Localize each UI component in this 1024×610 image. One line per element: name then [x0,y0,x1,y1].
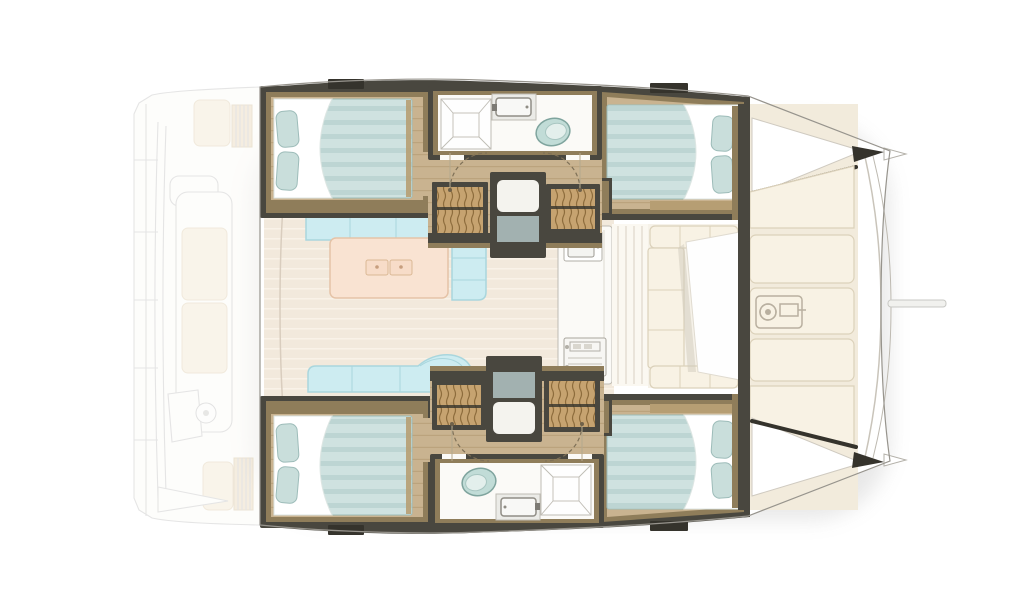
floor-plan-canvas [0,0,1024,610]
bowsprit [888,300,946,307]
galley [558,226,612,384]
port-bathroom-block [428,86,602,258]
foredeck [748,104,862,510]
cockpit-bench [648,248,684,368]
bow-tip [884,454,906,466]
bulkhead-trim [732,394,738,508]
forward-cockpit [648,224,740,388]
sunpad-cushion [750,235,854,283]
starboard-bathroom-block [430,356,604,528]
sunpad-cushion [750,339,854,381]
aft-cockpit-ghost [134,87,260,525]
starboard-aft-cabin [260,396,434,528]
side-steps [232,105,252,147]
starboard-forward-cabin [596,394,750,528]
cockpit-cushion [182,228,227,300]
port-forward-cabin [596,86,750,220]
catamaran-floor-plan [0,0,1024,610]
cockpit-cushion [182,303,227,373]
port-aft-cabin [260,86,434,218]
forward-bulkhead [738,104,750,510]
side-steps [234,458,253,510]
bulkhead-trim [732,106,738,220]
forward-passage [612,224,648,386]
aft-seat-cushion [194,100,230,146]
